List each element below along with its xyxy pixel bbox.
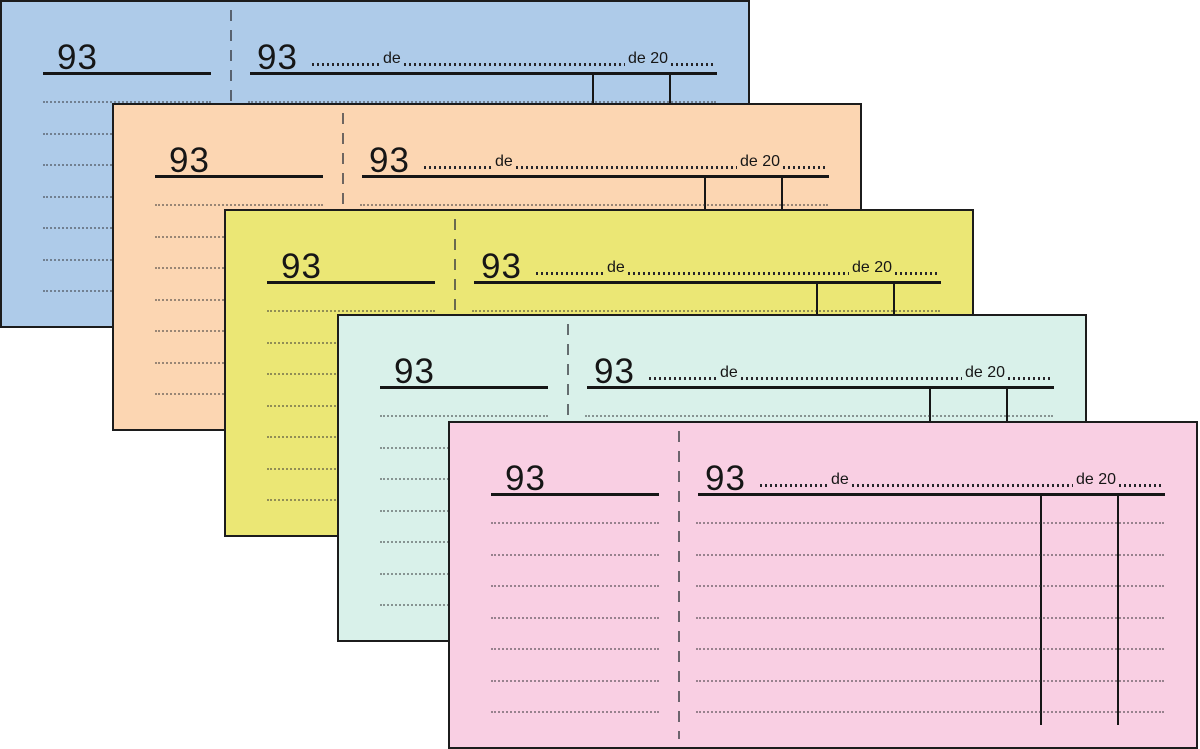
writing-line (696, 585, 1164, 587)
writing-line (491, 680, 659, 682)
writing-line (491, 711, 659, 713)
writing-line (696, 522, 1164, 524)
dotted-blank (628, 272, 849, 275)
body-writing-lines (696, 522, 1164, 743)
stub-number: 93 (505, 461, 546, 496)
writing-line (380, 415, 548, 417)
writing-line (585, 415, 1053, 417)
de-label: de (604, 260, 628, 277)
de-label: de (492, 154, 516, 171)
header-underline (587, 386, 1054, 389)
header-underline (474, 281, 941, 284)
writing-line (696, 711, 1164, 713)
writing-line (472, 310, 940, 312)
stub-writing-lines (491, 522, 659, 743)
stub-number-underline (380, 386, 548, 389)
de-20-label: de 20 (962, 365, 1008, 382)
dotted-blank (312, 63, 380, 66)
dotted-blank (536, 272, 604, 275)
de-label: de (380, 51, 404, 68)
stub-number-underline (267, 281, 435, 284)
writing-line (491, 554, 659, 556)
dotted-blank (671, 63, 715, 66)
dotted-blank (516, 166, 737, 169)
receipt-forms-stack: 93 93 de de 20 93 93 de de 20 (0, 0, 1200, 749)
date-line: de de 20 (250, 46, 717, 68)
dotted-blank (895, 272, 939, 275)
stub-number: 93 (57, 40, 98, 75)
de-20-label: de 20 (625, 51, 671, 68)
stub-number-underline (155, 175, 323, 178)
date-line: de de 20 (474, 255, 941, 277)
de-20-label: de 20 (737, 154, 783, 171)
dotted-blank (404, 63, 625, 66)
perforation-dashed-line (678, 431, 680, 739)
stub-number: 93 (281, 249, 322, 284)
stub-number-underline (43, 72, 211, 75)
writing-line (491, 585, 659, 587)
stub-number: 93 (394, 354, 435, 389)
writing-line (696, 648, 1164, 650)
header-underline (362, 175, 829, 178)
writing-line (696, 617, 1164, 619)
writing-line (267, 310, 435, 312)
de-label: de (717, 365, 741, 382)
writing-line (360, 204, 828, 206)
dotted-blank (1119, 484, 1163, 487)
header-underline (698, 493, 1165, 496)
header-underline (250, 72, 717, 75)
de-20-label: de 20 (849, 260, 895, 277)
date-line: de de 20 (587, 360, 1054, 382)
date-line: de de 20 (362, 149, 829, 171)
dotted-blank (1008, 377, 1052, 380)
dotted-blank (852, 484, 1073, 487)
writing-line (155, 204, 323, 206)
de-20-label: de 20 (1073, 472, 1119, 489)
dotted-blank (741, 377, 962, 380)
writing-line (491, 617, 659, 619)
writing-line (696, 554, 1164, 556)
writing-line (491, 522, 659, 524)
writing-line (696, 680, 1164, 682)
date-line: de de 20 (698, 467, 1165, 489)
dotted-blank (649, 377, 717, 380)
writing-line (491, 648, 659, 650)
dotted-blank (783, 166, 827, 169)
stub-number: 93 (169, 143, 210, 178)
receipt-form-pink: 93 93 de de 20 (448, 421, 1198, 749)
dotted-blank (760, 484, 828, 487)
de-label: de (828, 472, 852, 489)
stub-number-underline (491, 493, 659, 496)
dotted-blank (424, 166, 492, 169)
